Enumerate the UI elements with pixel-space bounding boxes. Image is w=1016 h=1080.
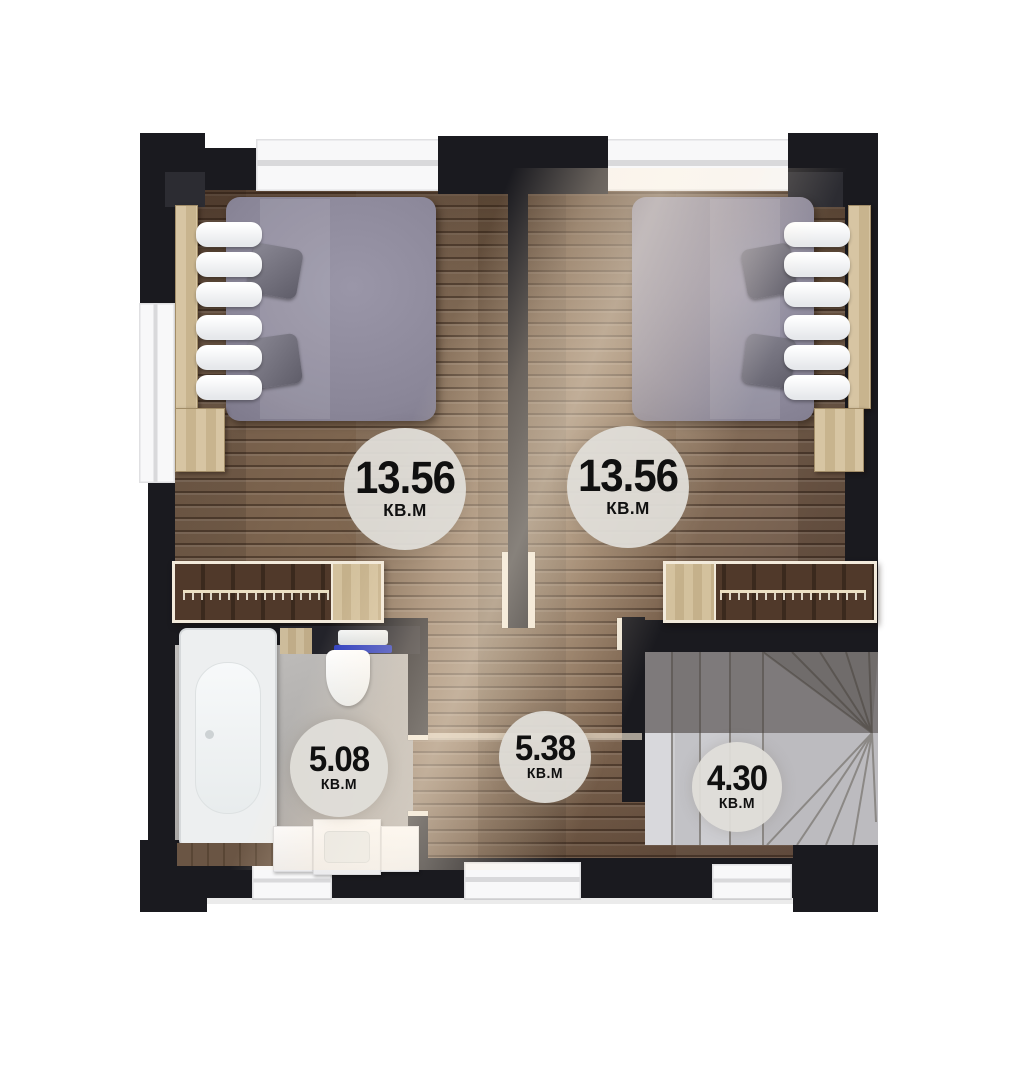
sink-basin <box>324 831 370 863</box>
area-value: 13.56 <box>578 454 678 497</box>
window-top-left <box>256 139 443 191</box>
corner-pillar-top-left-shade <box>165 172 205 207</box>
nightstand-right <box>814 408 864 472</box>
bathroom-counter-side <box>280 628 312 654</box>
headboard-left <box>175 205 198 409</box>
headboard-right <box>848 205 871 409</box>
area-unit: КВ.М <box>606 499 650 519</box>
bathtub-faucet <box>205 730 214 739</box>
wardrobe-left-hangers <box>183 593 329 600</box>
window-left <box>139 303 175 483</box>
wardrobe-right <box>663 561 877 623</box>
wardrobe-left <box>172 561 384 623</box>
pillow <box>196 345 262 370</box>
area-unit: КВ.М <box>527 766 563 782</box>
area-value: 13.56 <box>355 456 455 499</box>
area-value: 5.08 <box>309 742 369 776</box>
pillow <box>196 315 262 340</box>
pillow <box>784 345 850 370</box>
pillow <box>784 282 850 307</box>
wardrobe-right-cabinet <box>666 564 716 620</box>
vanity-cabinet-right <box>381 826 419 872</box>
doorframe-bedroom-left <box>502 552 508 628</box>
pillow <box>196 282 262 307</box>
vanity-cabinet-left <box>273 826 313 872</box>
area-badge-bedroom-right: 13.56 КВ.М <box>567 426 689 548</box>
pillow <box>784 375 850 400</box>
pillow <box>196 375 262 400</box>
nightstand-left <box>175 408 225 472</box>
area-badge-hallway: 5.38 КВ.М <box>499 711 591 803</box>
area-value: 5.38 <box>515 731 575 765</box>
wall-stairs-top <box>645 620 878 652</box>
doorframe-bedroom-right <box>528 552 535 628</box>
bath-mat <box>177 843 273 866</box>
pillow <box>784 222 850 247</box>
floor-plan: 13.56 КВ.М 13.56 КВ.М 5.08 КВ.М 5.38 КВ.… <box>0 0 1016 1080</box>
window-bottom-right <box>712 864 792 900</box>
bathtub-basin <box>195 662 261 814</box>
area-badge-staircase: 4.30 КВ.М <box>692 742 782 832</box>
area-unit: КВ.М <box>383 501 427 521</box>
towel-stack <box>338 630 388 645</box>
pillow <box>784 315 850 340</box>
pillow <box>196 222 262 247</box>
area-badge-bathroom: 5.08 КВ.М <box>290 719 388 817</box>
window-top-right <box>606 139 790 191</box>
pillow <box>196 252 262 277</box>
area-unit: КВ.М <box>321 777 357 793</box>
bathroom-door-threshold-top <box>408 735 428 740</box>
wardrobe-left-cabinet <box>331 564 381 620</box>
bottom-wall-shadow <box>207 898 793 904</box>
area-badge-bedroom-left: 13.56 КВ.М <box>344 428 466 550</box>
wall-stairs-left <box>622 617 645 802</box>
bathtub <box>179 628 277 848</box>
wall-bedroom-divider <box>508 150 528 628</box>
area-value: 4.30 <box>707 761 767 795</box>
area-unit: КВ.М <box>719 796 755 812</box>
doorframe-stairs <box>617 618 622 650</box>
window-bottom-center <box>464 862 581 900</box>
bathroom-door-threshold-bottom <box>408 811 428 816</box>
wardrobe-right-hangers <box>720 593 866 600</box>
pillow <box>784 252 850 277</box>
